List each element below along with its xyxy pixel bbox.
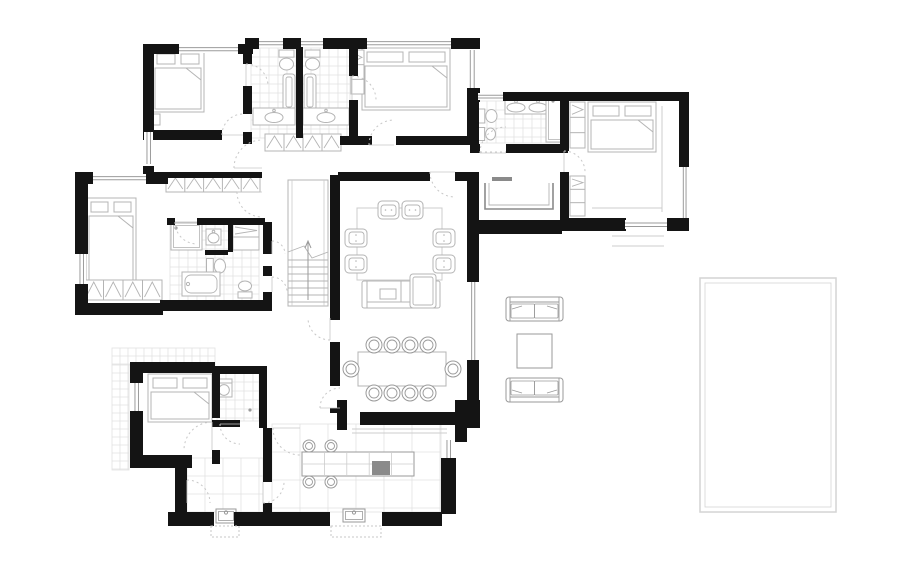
wall	[75, 184, 88, 254]
wall	[212, 450, 220, 464]
wall	[470, 220, 562, 234]
dining-chair	[366, 385, 382, 401]
wall	[263, 428, 272, 482]
utility-floor	[187, 458, 263, 512]
bar-stool	[303, 476, 315, 488]
wall	[160, 300, 265, 311]
dining-table	[358, 352, 446, 386]
window	[469, 282, 477, 360]
wall	[259, 366, 267, 428]
window	[93, 174, 146, 182]
wall	[455, 400, 480, 428]
wall	[506, 144, 568, 153]
door-swing	[184, 422, 212, 450]
wall	[243, 132, 252, 144]
wall	[146, 172, 168, 184]
wall	[205, 250, 228, 255]
entry-mat	[211, 526, 239, 537]
outdoor-sofa	[506, 378, 563, 402]
bed-master	[588, 102, 656, 152]
wall	[338, 172, 430, 181]
wall	[467, 172, 479, 282]
door-swing	[272, 241, 285, 254]
wall	[679, 101, 689, 167]
wall	[330, 408, 340, 413]
wall	[143, 130, 222, 140]
bed-bedroom-3	[86, 198, 136, 284]
wall	[263, 503, 272, 514]
cooktop	[372, 461, 390, 475]
bar-stool	[325, 476, 337, 488]
wall	[212, 366, 267, 374]
armchair	[402, 201, 423, 219]
wardrobe-master	[570, 102, 585, 148]
wall	[296, 46, 303, 138]
door-swing	[430, 172, 455, 197]
wall	[228, 222, 233, 252]
wall	[75, 303, 163, 315]
wall	[234, 512, 330, 526]
dining-chair	[343, 361, 359, 377]
vanity-bath-2	[303, 108, 349, 125]
outdoor-sofa	[506, 297, 563, 321]
armchair	[345, 255, 367, 273]
dining-chair	[366, 337, 382, 353]
shower-drain	[248, 408, 251, 411]
swimming-pool	[700, 278, 836, 512]
window	[444, 440, 453, 458]
dining-chair	[402, 337, 418, 353]
toilet-bath-3	[207, 259, 226, 274]
window	[144, 132, 153, 164]
utility-sink	[216, 509, 236, 523]
armchair	[433, 229, 455, 247]
dining-chair	[445, 361, 461, 377]
wall	[263, 292, 272, 311]
door-swing	[272, 277, 287, 292]
window	[367, 39, 451, 47]
wall	[243, 86, 252, 114]
vanity-ensuite	[505, 99, 549, 114]
dining-chair	[384, 337, 400, 353]
terrace-strip-left	[112, 365, 129, 470]
bed-bedroom-2	[362, 48, 450, 110]
wall	[560, 101, 569, 151]
window	[179, 45, 238, 53]
entry-door-leaf	[492, 177, 512, 181]
sofa-chaise	[410, 274, 436, 308]
wardrobe-hall	[166, 176, 260, 192]
wall	[165, 172, 262, 178]
bed-bedroom-1	[152, 50, 204, 112]
wall	[349, 46, 358, 76]
wall	[455, 428, 467, 442]
wardrobe-bedroom-3	[84, 280, 162, 300]
window	[467, 50, 477, 88]
armchair	[433, 255, 455, 273]
wall	[330, 308, 340, 320]
shower-unit	[283, 74, 295, 110]
window	[478, 93, 503, 100]
floor-plan-canvas	[0, 0, 900, 577]
dining-chair	[384, 385, 400, 401]
window	[625, 220, 667, 229]
entry-mat	[331, 526, 381, 537]
toilet-wc	[238, 281, 252, 298]
wall	[396, 136, 472, 145]
outdoor-table	[517, 334, 552, 368]
kitchen-sink	[343, 509, 365, 522]
wall	[340, 136, 354, 145]
wardrobe-entry	[570, 176, 585, 216]
dining-chair	[420, 385, 436, 401]
window	[77, 254, 86, 284]
window	[259, 39, 283, 47]
bidet-ensuite	[479, 128, 496, 141]
dining-chair	[402, 385, 418, 401]
wall	[130, 362, 215, 373]
window	[301, 39, 323, 47]
living-rug	[357, 208, 442, 280]
toilet-ensuite	[478, 109, 497, 123]
shower-unit	[304, 74, 316, 110]
closet-bath-3	[233, 224, 259, 250]
window	[132, 383, 141, 411]
door-swing	[234, 140, 262, 168]
sofa-tray	[380, 289, 396, 299]
toilet	[279, 50, 294, 70]
wall	[130, 411, 143, 457]
wall	[330, 342, 340, 386]
staircase	[288, 180, 328, 306]
wall	[470, 144, 480, 153]
armchair	[345, 229, 367, 247]
wall	[263, 222, 272, 254]
wall	[330, 175, 340, 308]
wall	[212, 420, 240, 427]
wall	[243, 54, 252, 64]
wall	[263, 266, 272, 276]
floor-plan	[0, 0, 900, 577]
wall	[130, 373, 143, 383]
wall	[470, 92, 479, 101]
window	[681, 167, 688, 218]
bed-bedroom-4	[148, 374, 212, 422]
toilet	[305, 50, 320, 70]
wall	[382, 512, 442, 526]
vanity-bath-3	[206, 229, 221, 245]
wall	[167, 218, 175, 225]
vanity-bath-1	[253, 108, 295, 125]
wall	[168, 512, 214, 526]
wall	[467, 360, 479, 400]
wall	[667, 218, 689, 231]
door-swing	[222, 114, 243, 135]
kitchen-island	[302, 452, 414, 476]
entry-bench	[485, 183, 553, 209]
wall	[441, 458, 456, 514]
wall	[451, 38, 480, 49]
bar-stool	[325, 440, 337, 452]
wall	[560, 218, 626, 231]
wall	[455, 172, 467, 181]
bar-stool	[303, 440, 315, 452]
wall	[143, 54, 154, 132]
wall	[75, 172, 93, 184]
wall	[337, 400, 347, 430]
door-swing	[564, 151, 585, 172]
door-swing	[308, 318, 330, 340]
wall	[560, 172, 569, 220]
dining-chair	[420, 337, 436, 353]
armchair	[378, 201, 399, 219]
wall	[503, 92, 689, 101]
door-swing	[237, 192, 262, 217]
wall	[143, 44, 179, 54]
wall	[245, 38, 259, 49]
bathtub	[182, 272, 220, 296]
wall	[360, 412, 457, 425]
door-swing	[369, 120, 394, 145]
